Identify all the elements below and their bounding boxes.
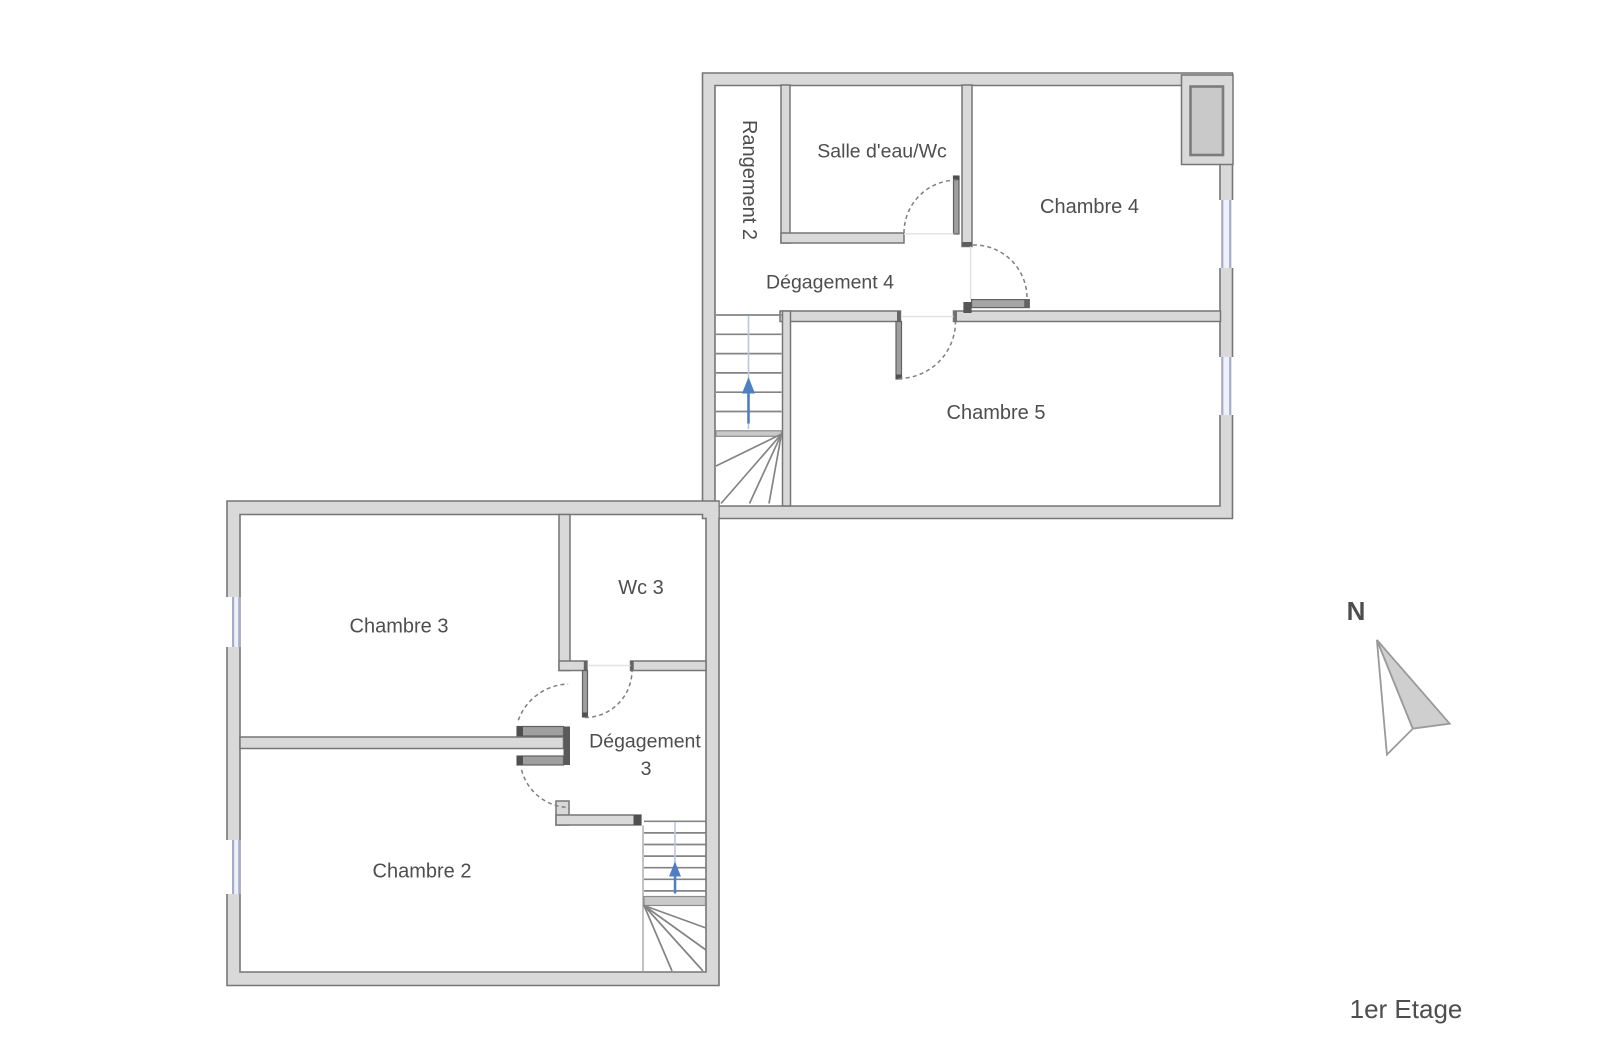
svg-text:3: 3 (641, 758, 652, 780)
svg-text:Dégagement: Dégagement (589, 730, 701, 752)
svg-text:Chambre 4: Chambre 4 (1040, 196, 1139, 218)
svg-text:1er Etage: 1er Etage (1350, 994, 1463, 1024)
svg-text:Chambre 2: Chambre 2 (373, 861, 472, 883)
svg-text:N: N (1347, 596, 1366, 626)
svg-text:Wc 3: Wc 3 (618, 577, 664, 599)
svg-text:Chambre 5: Chambre 5 (947, 402, 1046, 424)
svg-text:Rangement 2: Rangement 2 (738, 120, 760, 240)
svg-text:Chambre 3: Chambre 3 (350, 616, 449, 638)
svg-text:Dégagement 4: Dégagement 4 (766, 271, 894, 293)
svg-text:Salle d'eau/Wc: Salle d'eau/Wc (817, 140, 947, 162)
